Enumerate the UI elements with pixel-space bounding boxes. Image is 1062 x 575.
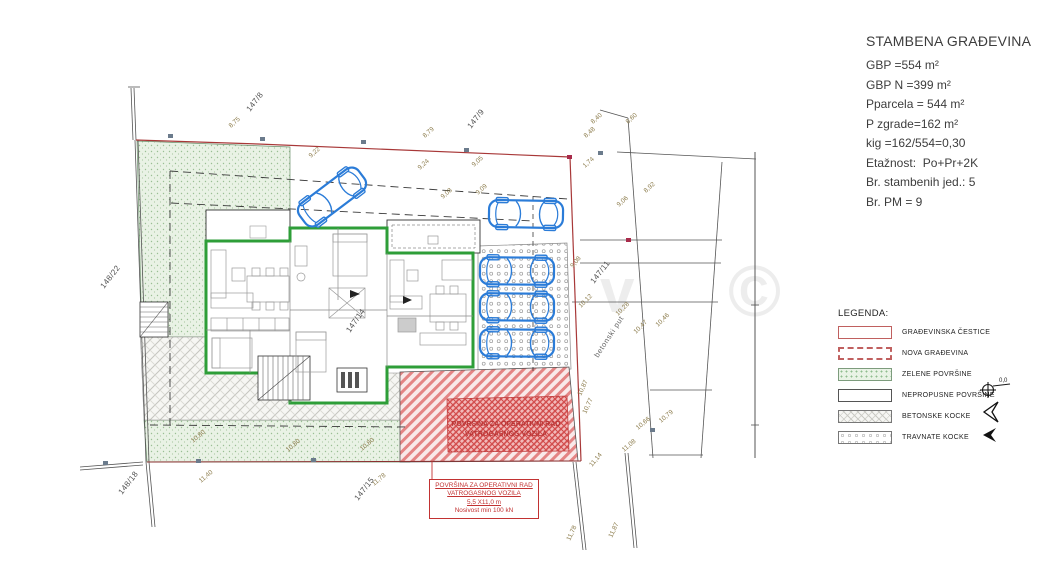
parcel-number-label: 148/22 <box>98 263 122 290</box>
legend-item: GRAĐEVINSKA ČESTICE <box>838 326 1053 339</box>
garage-room <box>206 210 290 241</box>
legend-item: NOVA GRAĐEVINA <box>838 347 1053 360</box>
title-line: GBP =554 m² <box>866 56 1062 76</box>
title-line: kig =162/554=0,30 <box>866 134 1062 154</box>
parcel-number-label: 147/15 <box>352 475 376 502</box>
dimension-label: 9,24 <box>417 158 431 172</box>
legend-swatch-white <box>838 389 892 402</box>
dimension-label: 11,40 <box>198 469 215 485</box>
benchmark-label: 0,0 <box>999 378 1008 384</box>
legend-swatch-plot <box>838 326 892 339</box>
stairs-indoor <box>258 356 310 400</box>
project-title-block: STAMBENA GRAĐEVINA GBP =554 m²GBP N =399… <box>866 33 1062 212</box>
dimension-label: 8,48 <box>583 126 597 140</box>
stairs-outdoor <box>140 302 168 337</box>
legend-swatch-green <box>838 368 892 381</box>
legend-label: TRAVNATE KOCKE <box>902 434 969 441</box>
dimension-label: 11,14 <box>588 451 604 468</box>
dimension-label: 10,79 <box>658 408 675 424</box>
fire-label-line: VATROGASNOG VOZILA <box>431 490 537 498</box>
legend-swatch-newb <box>838 347 892 360</box>
dimension-label: 8,40 <box>590 112 604 126</box>
dimension-label: 11,87 <box>607 521 620 539</box>
site-plan-page: v© <box>0 0 1062 575</box>
grass-paver-parking-area <box>478 243 571 372</box>
dimension-label: 11,08 <box>621 438 638 454</box>
title-line: Etažnost: Po+Pr+2K <box>866 154 1062 174</box>
dimension-label: 10,77 <box>581 397 594 415</box>
storage-room <box>337 368 367 392</box>
legend-label: ZELENE POVRŠINE <box>902 371 972 378</box>
watermark: v© <box>600 252 781 332</box>
map-symbols: 0,0 <box>972 372 1032 452</box>
car-icon <box>489 197 564 230</box>
title-line: Pparcela = 544 m² <box>866 95 1062 115</box>
project-title: STAMBENA GRAĐEVINA <box>866 33 1062 49</box>
title-line: GBP N =399 m² <box>866 76 1062 96</box>
dimension-label: 1,74 <box>582 156 596 170</box>
dimension-label: 11,78 <box>565 524 578 542</box>
dimension-label: 9,05 <box>471 155 485 169</box>
parcel-number-label: 147/9 <box>465 107 486 130</box>
north-arrow-filled-icon <box>983 428 996 442</box>
fire-label-line: Nosivost min 100 kN <box>431 507 537 515</box>
legend-swatch-beton <box>838 410 892 423</box>
title-lines: GBP =554 m²GBP N =399 m²Pparcela = 544 m… <box>866 56 1062 212</box>
title-line: Br. stambenih jed.: 5 <box>866 173 1062 193</box>
legend-swatch-trav <box>838 431 892 444</box>
legend-label: NOVA GRAĐEVINA <box>902 350 968 357</box>
title-line: P zgrade=162 m² <box>866 115 1062 135</box>
fire-label-line: 5,5 X11,0 m <box>431 499 537 507</box>
dimension-label: 8,60 <box>625 112 639 126</box>
dimension-label: 10,46 <box>654 312 671 329</box>
title-line: Br. PM = 9 <box>866 193 1062 213</box>
dimension-label: 9,08 <box>440 187 454 201</box>
dimension-label: 8,92 <box>643 181 657 195</box>
dimension-label: 10,66 <box>635 415 652 431</box>
dimension-label: 8,75 <box>228 116 242 130</box>
legend-label: GRAĐEVINSKA ČESTICE <box>902 329 990 336</box>
north-arrow-outline-icon <box>984 402 998 422</box>
dimension-label: 9,09 <box>475 183 489 197</box>
parcel-number-label: 147/8 <box>244 90 265 113</box>
dimension-label: 9,22 <box>308 146 322 160</box>
car-icon <box>293 162 371 232</box>
dimension-label: 9,08 <box>569 255 583 269</box>
dimension-label: 10,47 <box>632 319 649 336</box>
fire-label-line: POVRŠINA ZA OPERATIVNI RAD <box>431 482 537 490</box>
dimension-label: 9,06 <box>616 195 630 209</box>
parcel-number-label: 148/18 <box>116 469 140 496</box>
dimension-label: 10,12 <box>577 293 594 310</box>
dimension-label: 8,79 <box>422 126 436 140</box>
svg-text:POVRŠINA ZA OPERATIVNI RAD: POVRŠINA ZA OPERATIVNI RAD <box>452 419 561 428</box>
site-plan-drawing: v© <box>0 0 830 575</box>
fire-area-label-box: POVRŠINA ZA OPERATIVNI RAD VATROGASNOG V… <box>429 479 539 519</box>
legend-heading: LEGENDA: <box>838 308 1053 319</box>
svg-text:VATROGASNOG VOZILA: VATROGASNOG VOZILA <box>465 431 547 438</box>
legend-label: BETONSKE KOCKE <box>902 413 971 420</box>
